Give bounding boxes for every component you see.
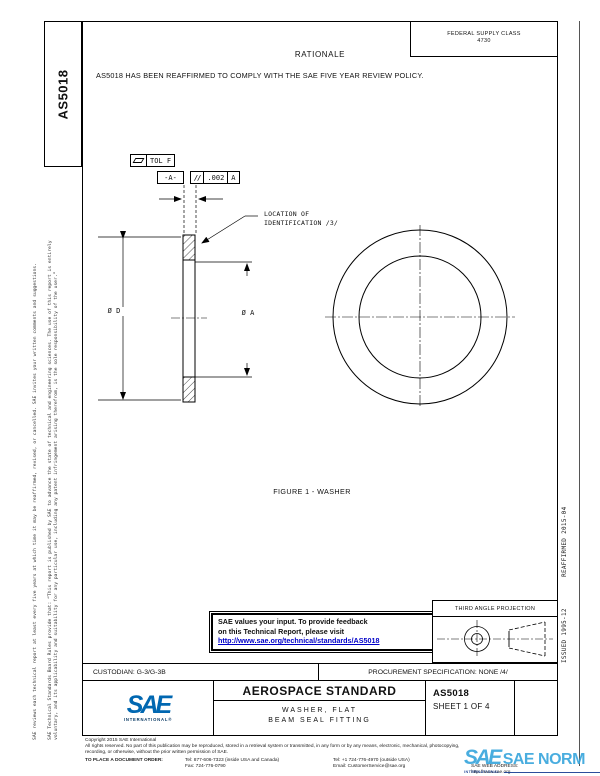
email-address: Email: CustomerService@sae.org xyxy=(333,764,471,776)
watermark-name: SAE NORM xyxy=(503,751,585,769)
datum-a-flag: -A- xyxy=(157,171,184,184)
flatness-icon xyxy=(131,155,146,166)
document-type: AEROSPACE STANDARD xyxy=(214,681,425,701)
document-page: AS5018 SAE Technical Standards Board Rul… xyxy=(0,0,600,776)
outer-diameter-dimension xyxy=(98,237,181,400)
watermark-sae-icon: SAE xyxy=(464,749,500,767)
sheet-indicator: SHEET 1 OF 4 xyxy=(433,702,514,711)
procurement-cell: PROCUREMENT SPECIFICATION: NONE /4/ xyxy=(319,664,557,680)
feedback-line1: SAE values your input. To provide feedba… xyxy=(218,617,428,627)
page-edge-line xyxy=(579,21,580,766)
feedback-line2: on this Technical Report, please visit xyxy=(218,627,428,637)
document-number: AS5018 xyxy=(433,688,514,699)
watermark-rule xyxy=(504,772,600,773)
side-doc-number-box: AS5018 xyxy=(44,21,82,167)
rationale-heading: RATIONALE xyxy=(82,50,558,59)
side-doc-number: AS5018 xyxy=(56,69,71,119)
document-title-cell: AEROSPACE STANDARD WASHER, FLAT BEAM SEA… xyxy=(213,681,426,735)
sae-logo-text: SAE xyxy=(127,694,169,716)
inner-diameter-label: Ø A xyxy=(236,309,260,318)
fsc-value: 4730 xyxy=(411,38,557,45)
fax-number: Fax: 724-776-0790 xyxy=(185,764,333,776)
flatness-tolerance: TOL F xyxy=(146,155,174,166)
rationale-body: AS5018 HAS BEEN REAFFIRMED TO COMPLY WIT… xyxy=(96,71,424,80)
document-number-cell: AS5018 SHEET 1 OF 4 xyxy=(426,681,515,735)
figure-caption: FIGURE 1 - WASHER xyxy=(82,487,542,496)
saenorm-watermark: SAE SAE NORM INTERNATIONAL. xyxy=(464,749,600,774)
title-block: SAE INTERNATIONAL® AEROSPACE STANDARD WA… xyxy=(82,680,558,736)
parallelism-value: .002 xyxy=(203,172,227,183)
identification-note-line1: LOCATION OF xyxy=(264,210,338,219)
document-title-line1: WASHER, FLAT xyxy=(214,706,425,716)
third-angle-projection-box: THIRD ANGLE PROJECTION xyxy=(432,600,558,663)
feedback-link[interactable]: http://www.sae.org/technical/standards/A… xyxy=(218,636,380,645)
sae-logo: SAE INTERNATIONAL® xyxy=(83,681,213,735)
document-title-line2: BEAM SEAL FITTING xyxy=(214,716,425,726)
left-disclaimer-note-1: SAE Technical Standards Board Rules prov… xyxy=(48,215,60,740)
washer-drawing xyxy=(82,140,558,512)
inner-diameter-dimension xyxy=(195,262,252,377)
watermark-subtext: INTERNATIONAL. xyxy=(464,770,501,774)
issued-reaffirmed-note: ISSUED 1995-12 REAFFIRMED 2015-04 xyxy=(561,383,568,663)
third-angle-projection-icon xyxy=(433,617,557,662)
fsc-label: FEDERAL SUPPLY CLASS xyxy=(411,31,557,38)
outer-diameter-label: Ø D xyxy=(102,307,126,316)
identification-note-line2: IDENTIFICATION /3/ xyxy=(264,219,338,228)
gdt-leader-lines xyxy=(159,185,223,233)
custodian-row: CUSTODIAN: G-3/G-3B PROCUREMENT SPECIFIC… xyxy=(82,663,558,681)
sae-logo-subtext: INTERNATIONAL® xyxy=(124,717,172,722)
identification-note: LOCATION OF IDENTIFICATION /3/ xyxy=(264,210,338,228)
custodian-cell: CUSTODIAN: G-3/G-3B xyxy=(83,664,319,680)
parallelism-control-frame: // .002 A xyxy=(190,171,240,184)
identification-leader xyxy=(202,216,258,243)
washer-front-view xyxy=(325,225,515,408)
left-disclaimer-note-2: SAE reviews each technical report at lea… xyxy=(33,215,39,740)
feedback-box: SAE values your input. To provide feedba… xyxy=(209,611,437,653)
parallelism-datum: A xyxy=(227,172,238,183)
title-block-blank-cell xyxy=(515,681,557,735)
projection-title: THIRD ANGLE PROJECTION xyxy=(433,601,557,617)
flatness-control-frame: TOL F xyxy=(130,154,175,167)
parallelism-icon: // xyxy=(191,172,203,183)
